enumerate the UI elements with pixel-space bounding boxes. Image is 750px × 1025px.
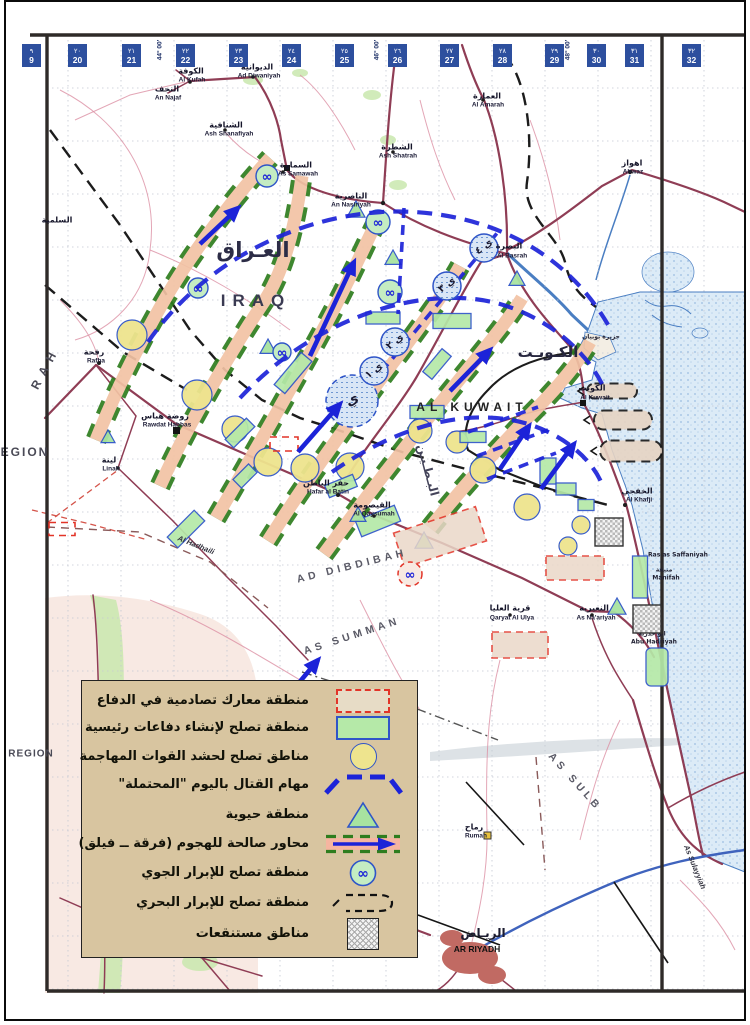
legend-item-marsh: مناطق مستنقعات (92, 918, 407, 950)
scanned-military-map: ∞ ∞ ∞ ∞ ∞ ∞ (0, 0, 750, 1025)
green-rect-swatch (319, 716, 407, 740)
air-landing-swatch: ∞ (319, 858, 407, 888)
legend-item-red-dash-rect: منطقة معارك تصادمية في الدفاع (92, 689, 407, 713)
legend-item-air-landing: ∞منطقة تصلح للإبرار الجوي (92, 858, 407, 888)
naval-landing-swatch (319, 891, 407, 915)
legend-item-label: منطقة تصلح للإبرار البحري (136, 895, 309, 910)
red-dash-rect-swatch (319, 689, 407, 713)
legend-item-label: منطقة معارك تصادمية في الدفاع (97, 693, 309, 708)
legend-item-naval-landing: منطقة تصلح للإبرار البحري (92, 891, 407, 915)
legend-box: منطقة معارك تصادمية في الدفاعمنطقة تصلح … (81, 680, 418, 958)
defence-rectangles (167, 312, 668, 686)
legend-item-green-rect: منطقة تصلح لإنشاء دفاعات رئيسية (92, 716, 407, 740)
legend-item-label: مهام القتال باليوم "المحتملة" (118, 777, 309, 792)
legend-item-blue-dash-arc: مهام القتال باليوم "المحتملة" (92, 773, 407, 797)
marsh-swatch (319, 918, 407, 950)
air-landing-icon: ∞ (385, 286, 396, 301)
legend-item-label: محاور صالحة للهجوم (فرقة ــ فيلق) (79, 836, 310, 851)
legend-item-label: مناطق تصلح لحشد القوات المهاجمة (79, 749, 309, 764)
yellow-circle-swatch (319, 743, 407, 770)
attack-corridors-layer (96, 158, 590, 554)
legend-item-yellow-circle: مناطق تصلح لحشد القوات المهاجمة (92, 743, 407, 770)
blue-dash-arc-swatch (319, 773, 407, 797)
legend-item-label: منطقة تصلح للإبرار الجوي (141, 865, 309, 880)
green-triangle-swatch (319, 800, 407, 830)
legend-item-label: منطقة تصلح لإنشاء دفاعات رئيسية (85, 720, 309, 735)
svg-text:∞: ∞ (357, 866, 369, 882)
air-landing-icon: ∞ (262, 170, 273, 185)
attack-axis-swatch (319, 833, 407, 855)
air-landing-icon: ∞ (405, 568, 416, 583)
water-layer (507, 175, 745, 872)
legend-item-green-triangle: منطقة حيوية (92, 800, 407, 830)
legend-item-label: مناطق مستنقعات (196, 926, 309, 941)
legend-item-attack-axis: محاور صالحة للهجوم (فرقة ــ فيلق) (92, 833, 407, 855)
air-landing-icon: ∞ (373, 216, 384, 231)
legend-item-label: منطقة حيوية (226, 807, 309, 822)
